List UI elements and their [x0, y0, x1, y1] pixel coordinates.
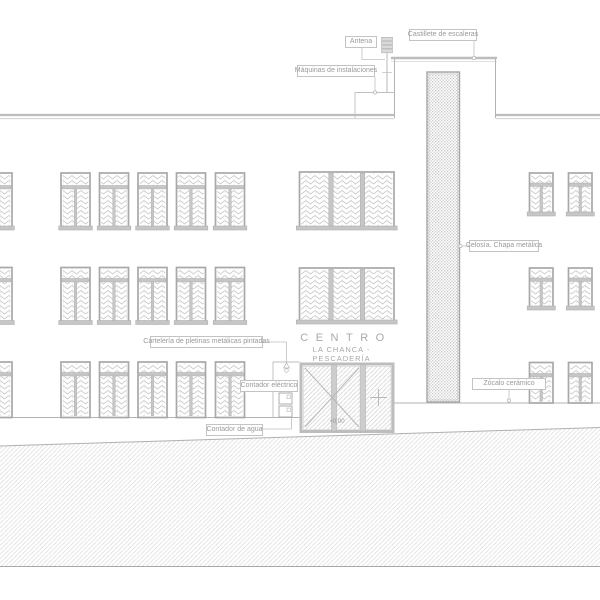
window: [566, 173, 594, 216]
window: [213, 173, 247, 230]
window: [100, 362, 129, 418]
maquinas-label: Máquinas de instalaciones: [297, 65, 375, 77]
sign-centro: CENTRO: [292, 332, 400, 344]
window: [0, 362, 12, 418]
zocalo-label: Zócalo cerámico: [472, 378, 546, 390]
window: [527, 268, 555, 310]
window: [97, 268, 131, 325]
level-marker: +0.00: [320, 419, 354, 425]
window: [527, 173, 555, 216]
carteleria-label: Cartelería de pletinas metálicas pintada…: [150, 336, 263, 348]
window: [136, 173, 170, 230]
window: [61, 362, 90, 418]
window: [59, 268, 93, 325]
window: [59, 173, 93, 230]
window: [566, 268, 594, 310]
antena-label: Antena: [345, 36, 377, 48]
sign-subtitle: LA CHANCA - PESCADERÍA: [290, 345, 393, 363]
antenna: [382, 37, 393, 92]
window: [174, 173, 208, 230]
window: [136, 268, 170, 325]
window: [177, 362, 206, 418]
window: [296, 172, 397, 230]
window: [0, 268, 14, 325]
castillete-label: Castillete de escaleras: [409, 29, 477, 41]
meter-boxes: [279, 393, 292, 417]
roof-parapet: [0, 115, 600, 119]
window: [296, 268, 397, 324]
contador-agua-label: Contador de agua: [206, 424, 263, 436]
celosia-label: Celosía. Chapa metálica: [469, 240, 539, 252]
window: [97, 173, 131, 230]
window: [138, 362, 167, 418]
elevation-drawing: [0, 0, 600, 600]
window: [0, 173, 14, 230]
window: [213, 268, 247, 325]
lattice-tower: [427, 72, 460, 402]
elevation-sheet: Antena Castillete de escaleras Máquinas …: [0, 0, 600, 600]
contador-electrico-label: Contador eléctrico: [240, 380, 298, 392]
window: [569, 363, 593, 404]
terrain: [0, 428, 600, 567]
window: [174, 268, 208, 325]
